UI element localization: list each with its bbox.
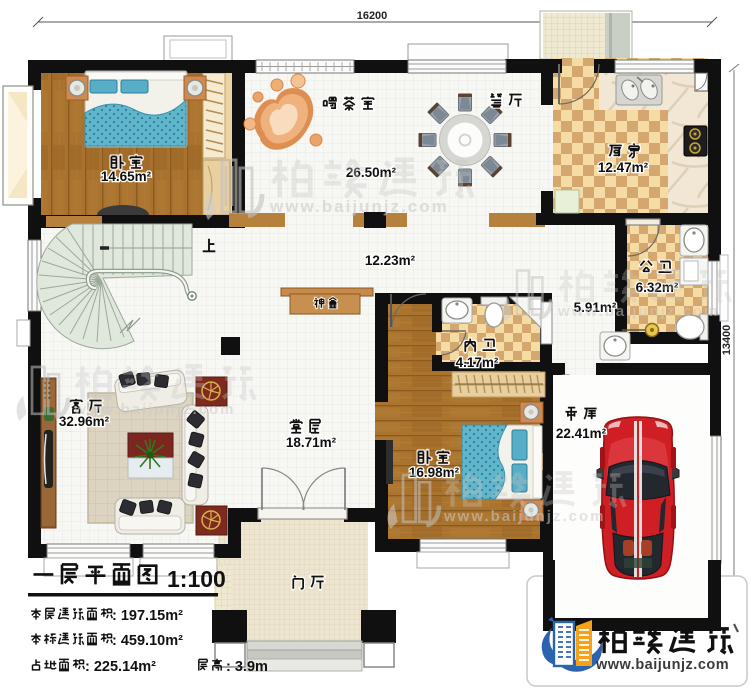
svg-text:4.17m²: 4.17m²	[456, 355, 499, 370]
svg-text:14.65m²: 14.65m²	[101, 169, 152, 184]
svg-text:www.baijunjz.com: www.baijunjz.com	[269, 197, 449, 216]
svg-text:18.71m²: 18.71m²	[286, 435, 337, 450]
svg-text:22.41m²: 22.41m²	[556, 426, 607, 441]
svg-text:12.47m²: 12.47m²	[598, 160, 649, 175]
svg-text:: 225.14m²: : 225.14m²	[85, 659, 156, 675]
svg-text:13400: 13400	[721, 325, 733, 356]
svg-text:www.baijunjz.com: www.baijunjz.com	[443, 508, 605, 525]
svg-text:16200: 16200	[357, 10, 388, 22]
svg-text:1:100: 1:100	[167, 566, 226, 592]
svg-text:: 459.10m²: : 459.10m²	[112, 633, 183, 649]
svg-text:: 197.15m²: : 197.15m²	[112, 608, 183, 624]
svg-text:www.baijunjz.com: www.baijunjz.com	[595, 657, 729, 673]
svg-text:www.baijunjz.com: www.baijunjz.com	[557, 303, 719, 320]
svg-text:: 3.9m: : 3.9m	[226, 659, 268, 675]
svg-text:12.23m²: 12.23m²	[365, 253, 416, 268]
svg-text:www.baijunjz.com: www.baijunjz.com	[73, 401, 235, 418]
